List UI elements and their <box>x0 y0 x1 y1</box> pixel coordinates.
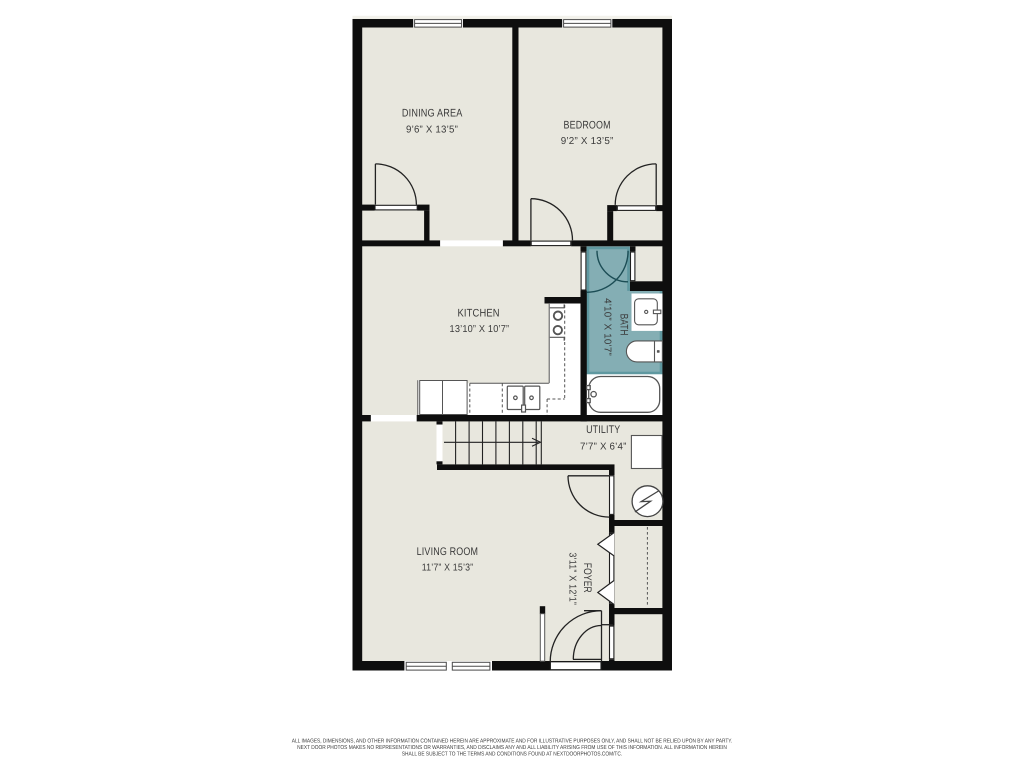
svg-text:SHALL BE SUBJECT TO THE TERMS: SHALL BE SUBJECT TO THE TERMS AND CONDIT… <box>402 750 623 757</box>
svg-text:UTILITY: UTILITY <box>586 424 621 436</box>
svg-text:ALL IMAGES, DIMENSIONS, AND OT: ALL IMAGES, DIMENSIONS, AND OTHER INFORM… <box>292 738 733 744</box>
svg-text:NEXT DOOR PHOTOS MAKES NO REPR: NEXT DOOR PHOTOS MAKES NO REPRESENTATION… <box>297 745 727 751</box>
svg-text:9’2” X 13’5”: 9’2” X 13’5” <box>561 136 614 147</box>
svg-text:9’6” X 13’5”: 9’6” X 13’5” <box>406 124 458 135</box>
svg-text:11’7” X 15’3”: 11’7” X 15’3” <box>422 563 474 574</box>
svg-text:13’10” X 10’7”: 13’10” X 10’7” <box>450 324 510 335</box>
svg-text:DINING AREA: DINING AREA <box>402 108 463 120</box>
svg-text:3’11” X 12’1”: 3’11” X 12’1” <box>567 552 578 605</box>
svg-text:BATH: BATH <box>618 314 630 336</box>
svg-text:FOYER: FOYER <box>581 563 593 593</box>
svg-text:7’7” X 6’4”: 7’7” X 6’4” <box>580 441 627 452</box>
svg-text:BEDROOM: BEDROOM <box>564 120 611 132</box>
svg-text:4’10” X 10’7”: 4’10” X 10’7” <box>602 298 613 356</box>
svg-text:KITCHEN: KITCHEN <box>458 307 500 319</box>
svg-text:LIVING ROOM: LIVING ROOM <box>417 546 479 558</box>
